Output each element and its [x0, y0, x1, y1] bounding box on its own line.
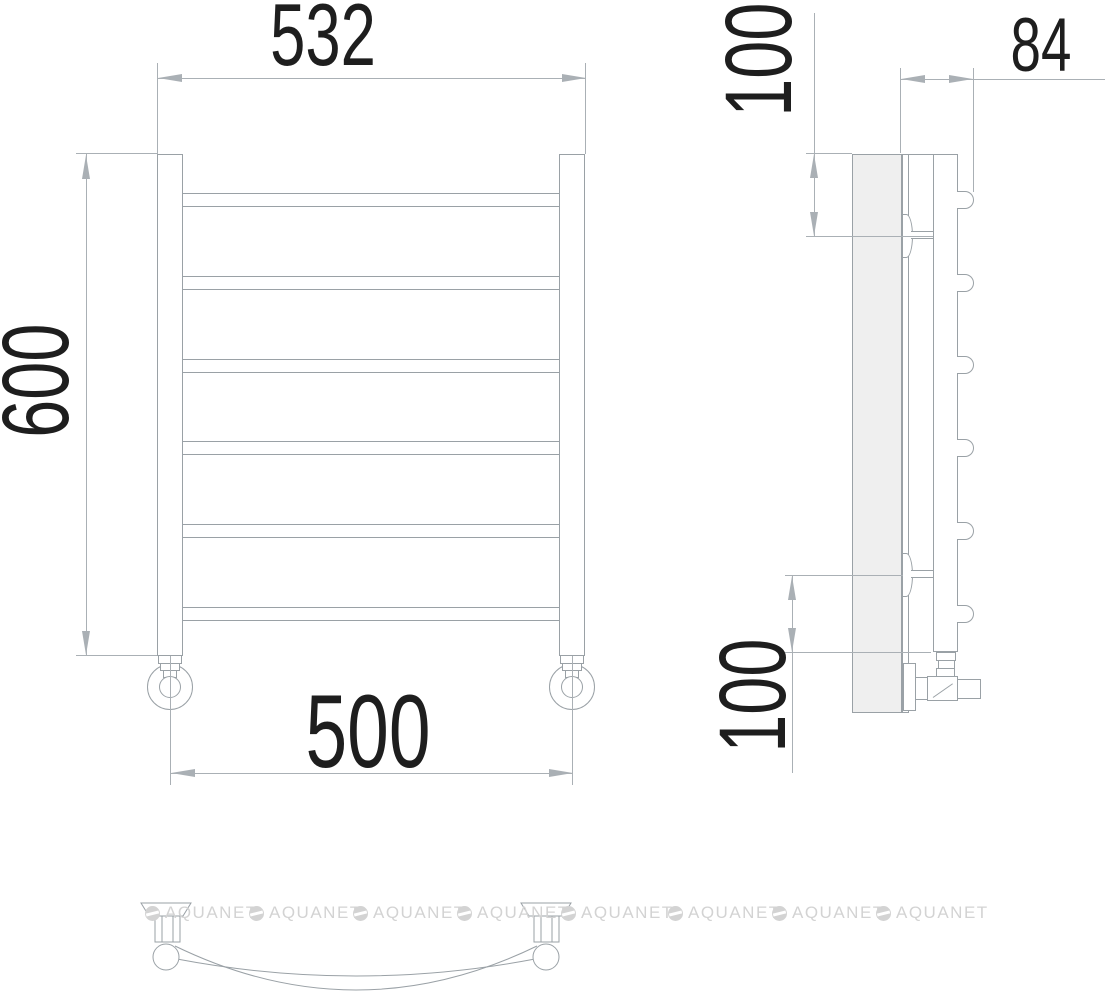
- watermark-8: AQUANET: [876, 903, 989, 923]
- watermark-text: AQUANET: [269, 903, 362, 923]
- dim-100-bottom-ext-upper: [785, 575, 903, 576]
- side-top-cap-line: [908, 154, 933, 155]
- dim-600-arrow-bottom: [82, 631, 90, 655]
- aquanet-logo-icon: [876, 906, 891, 921]
- dim-100-top-arrow-down: [810, 212, 818, 236]
- front-rail-5: [183, 524, 559, 538]
- watermark-4: AQUANET: [457, 903, 570, 923]
- dim-100-bottom-label: 100: [709, 669, 797, 753]
- aquanet-logo-icon: [772, 906, 787, 921]
- side-rail-end-5: [957, 522, 974, 540]
- watermark-text: AQUANET: [688, 903, 781, 923]
- front-left-post: [157, 154, 183, 656]
- aquanet-logo-icon: [145, 906, 160, 921]
- dim-532-arrow-left: [158, 74, 182, 82]
- side-rail-end-6: [957, 605, 974, 623]
- dim-600-ext-top: [76, 153, 157, 154]
- side-rail-end-4: [957, 439, 974, 457]
- watermark-text: AQUANET: [373, 903, 466, 923]
- front-left-centerline: [170, 656, 171, 785]
- plan-left-post-section: [153, 944, 179, 970]
- side-bracket-top-arm: [911, 231, 933, 239]
- front-rail-3: [183, 359, 559, 373]
- aquanet-logo-icon: [457, 906, 472, 921]
- side-valve-body: [927, 676, 958, 701]
- dim-100-bottom-ext-lower: [785, 652, 931, 653]
- watermark-1: AQUANET: [145, 903, 258, 923]
- side-rail-end-2: [957, 274, 974, 292]
- watermark-5: AQUANET: [561, 903, 674, 923]
- front-right-centerline: [572, 656, 573, 785]
- dim-84-arrow-left: [901, 75, 925, 83]
- plan-rail-outer-arc: [175, 946, 537, 990]
- dim-84-label: 84: [980, 8, 1102, 84]
- dim-500-label: 500: [296, 680, 440, 784]
- side-wall-panel: [852, 154, 902, 713]
- dim-84-ext-right: [973, 68, 974, 192]
- front-rail-1: [183, 193, 559, 207]
- plan-right-post-section: [533, 944, 559, 970]
- watermark-text: AQUANET: [581, 903, 674, 923]
- dim-100-top-arrow-up: [810, 154, 818, 178]
- dim-100-bottom-arrow-up: [788, 576, 796, 600]
- dim-100-top-label: 100: [715, 33, 803, 117]
- watermark-text: AQUANET: [792, 903, 885, 923]
- technical-drawing-canvas: 532 600 500 84 100: [0, 0, 1107, 1000]
- front-right-post: [559, 154, 585, 656]
- dim-100-top-line: [814, 13, 815, 236]
- side-bracket-bottom-arm: [911, 570, 933, 578]
- side-rail-end-3: [957, 356, 974, 374]
- dim-600-arrow-top: [82, 155, 90, 179]
- watermark-text: AQUANET: [896, 903, 989, 923]
- aquanet-logo-icon: [668, 906, 683, 921]
- watermark-text: AQUANET: [477, 903, 570, 923]
- watermark-3: AQUANET: [353, 903, 466, 923]
- dim-500-arrow-left: [171, 769, 195, 777]
- front-rail-6: [183, 607, 559, 621]
- front-rail-4: [183, 441, 559, 455]
- watermark-6: AQUANET: [668, 903, 781, 923]
- dim-100-top-ext-lower: [806, 236, 933, 237]
- watermark-7: AQUANET: [772, 903, 885, 923]
- aquanet-logo-icon: [353, 906, 368, 921]
- dim-500-arrow-right: [549, 769, 573, 777]
- dim-532-label: 532: [251, 0, 395, 79]
- watermark-text: AQUANET: [165, 903, 258, 923]
- side-rail-end-1: [957, 191, 974, 209]
- front-rail-2: [183, 276, 559, 290]
- dim-600-label: 600: [0, 354, 80, 438]
- dim-600-ext-bottom: [76, 655, 157, 656]
- aquanet-logo-icon: [249, 906, 264, 921]
- watermark-2: AQUANET: [249, 903, 362, 923]
- dim-532-arrow-right: [562, 74, 586, 82]
- plan-rail-inner-arc: [177, 959, 535, 976]
- aquanet-logo-icon: [561, 906, 576, 921]
- side-valve-outlet: [957, 679, 981, 699]
- side-post-tube: [933, 154, 958, 652]
- dim-84-arrow-right: [949, 75, 973, 83]
